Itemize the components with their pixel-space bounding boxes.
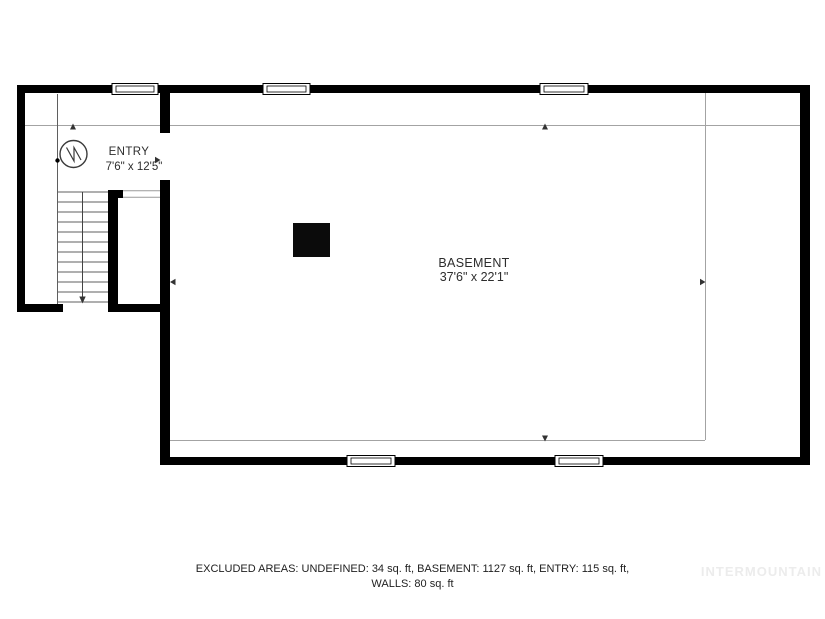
basement-top-arrow-icon	[542, 124, 548, 130]
basement-room-dimensions: 37'6" x 22'1"	[440, 270, 509, 284]
fixture-zigzag	[67, 148, 82, 162]
window-bottom-basement-1	[347, 456, 395, 467]
entry-top-arrow-icon	[70, 124, 76, 130]
basement-left-arrow-icon	[170, 279, 176, 285]
cased-opening	[123, 190, 160, 198]
basement-right-arrow-icon	[700, 279, 706, 285]
window-top-basement-1	[263, 84, 310, 95]
wall-entry-right-upper	[160, 93, 170, 133]
support-post	[293, 223, 330, 257]
basement-room-label: BASEMENT	[438, 256, 509, 270]
wall-right	[800, 85, 810, 465]
window-bottom-basement-2	[555, 456, 603, 467]
walls	[17, 85, 810, 465]
wall-room-top	[108, 190, 123, 198]
fixture-dot	[55, 158, 59, 162]
wall-bottom	[160, 457, 810, 465]
window-top-entry	[112, 84, 158, 95]
intermountain-watermark: INTERMOUNTAIN	[701, 564, 822, 579]
entry-room-label: ENTRY	[109, 146, 150, 158]
wall-bottom-left	[17, 304, 63, 312]
wall-room-left	[108, 190, 118, 304]
wall-left	[17, 93, 25, 312]
wall-basement-left	[160, 180, 170, 465]
excluded-areas-summary-line2: WALLS: 80 sq. ft	[0, 578, 825, 590]
entry-room-dimensions: 7'6" x 12'5"	[106, 161, 163, 173]
fixture-symbol-icon	[55, 141, 87, 168]
window-top-basement-2	[540, 84, 588, 95]
windows	[112, 84, 603, 467]
floorplan-page: ENTRY 7'6" x 12'5" BASEMENT 37'6" x 22'1…	[0, 0, 825, 619]
floorplan-drawing	[0, 0, 825, 619]
